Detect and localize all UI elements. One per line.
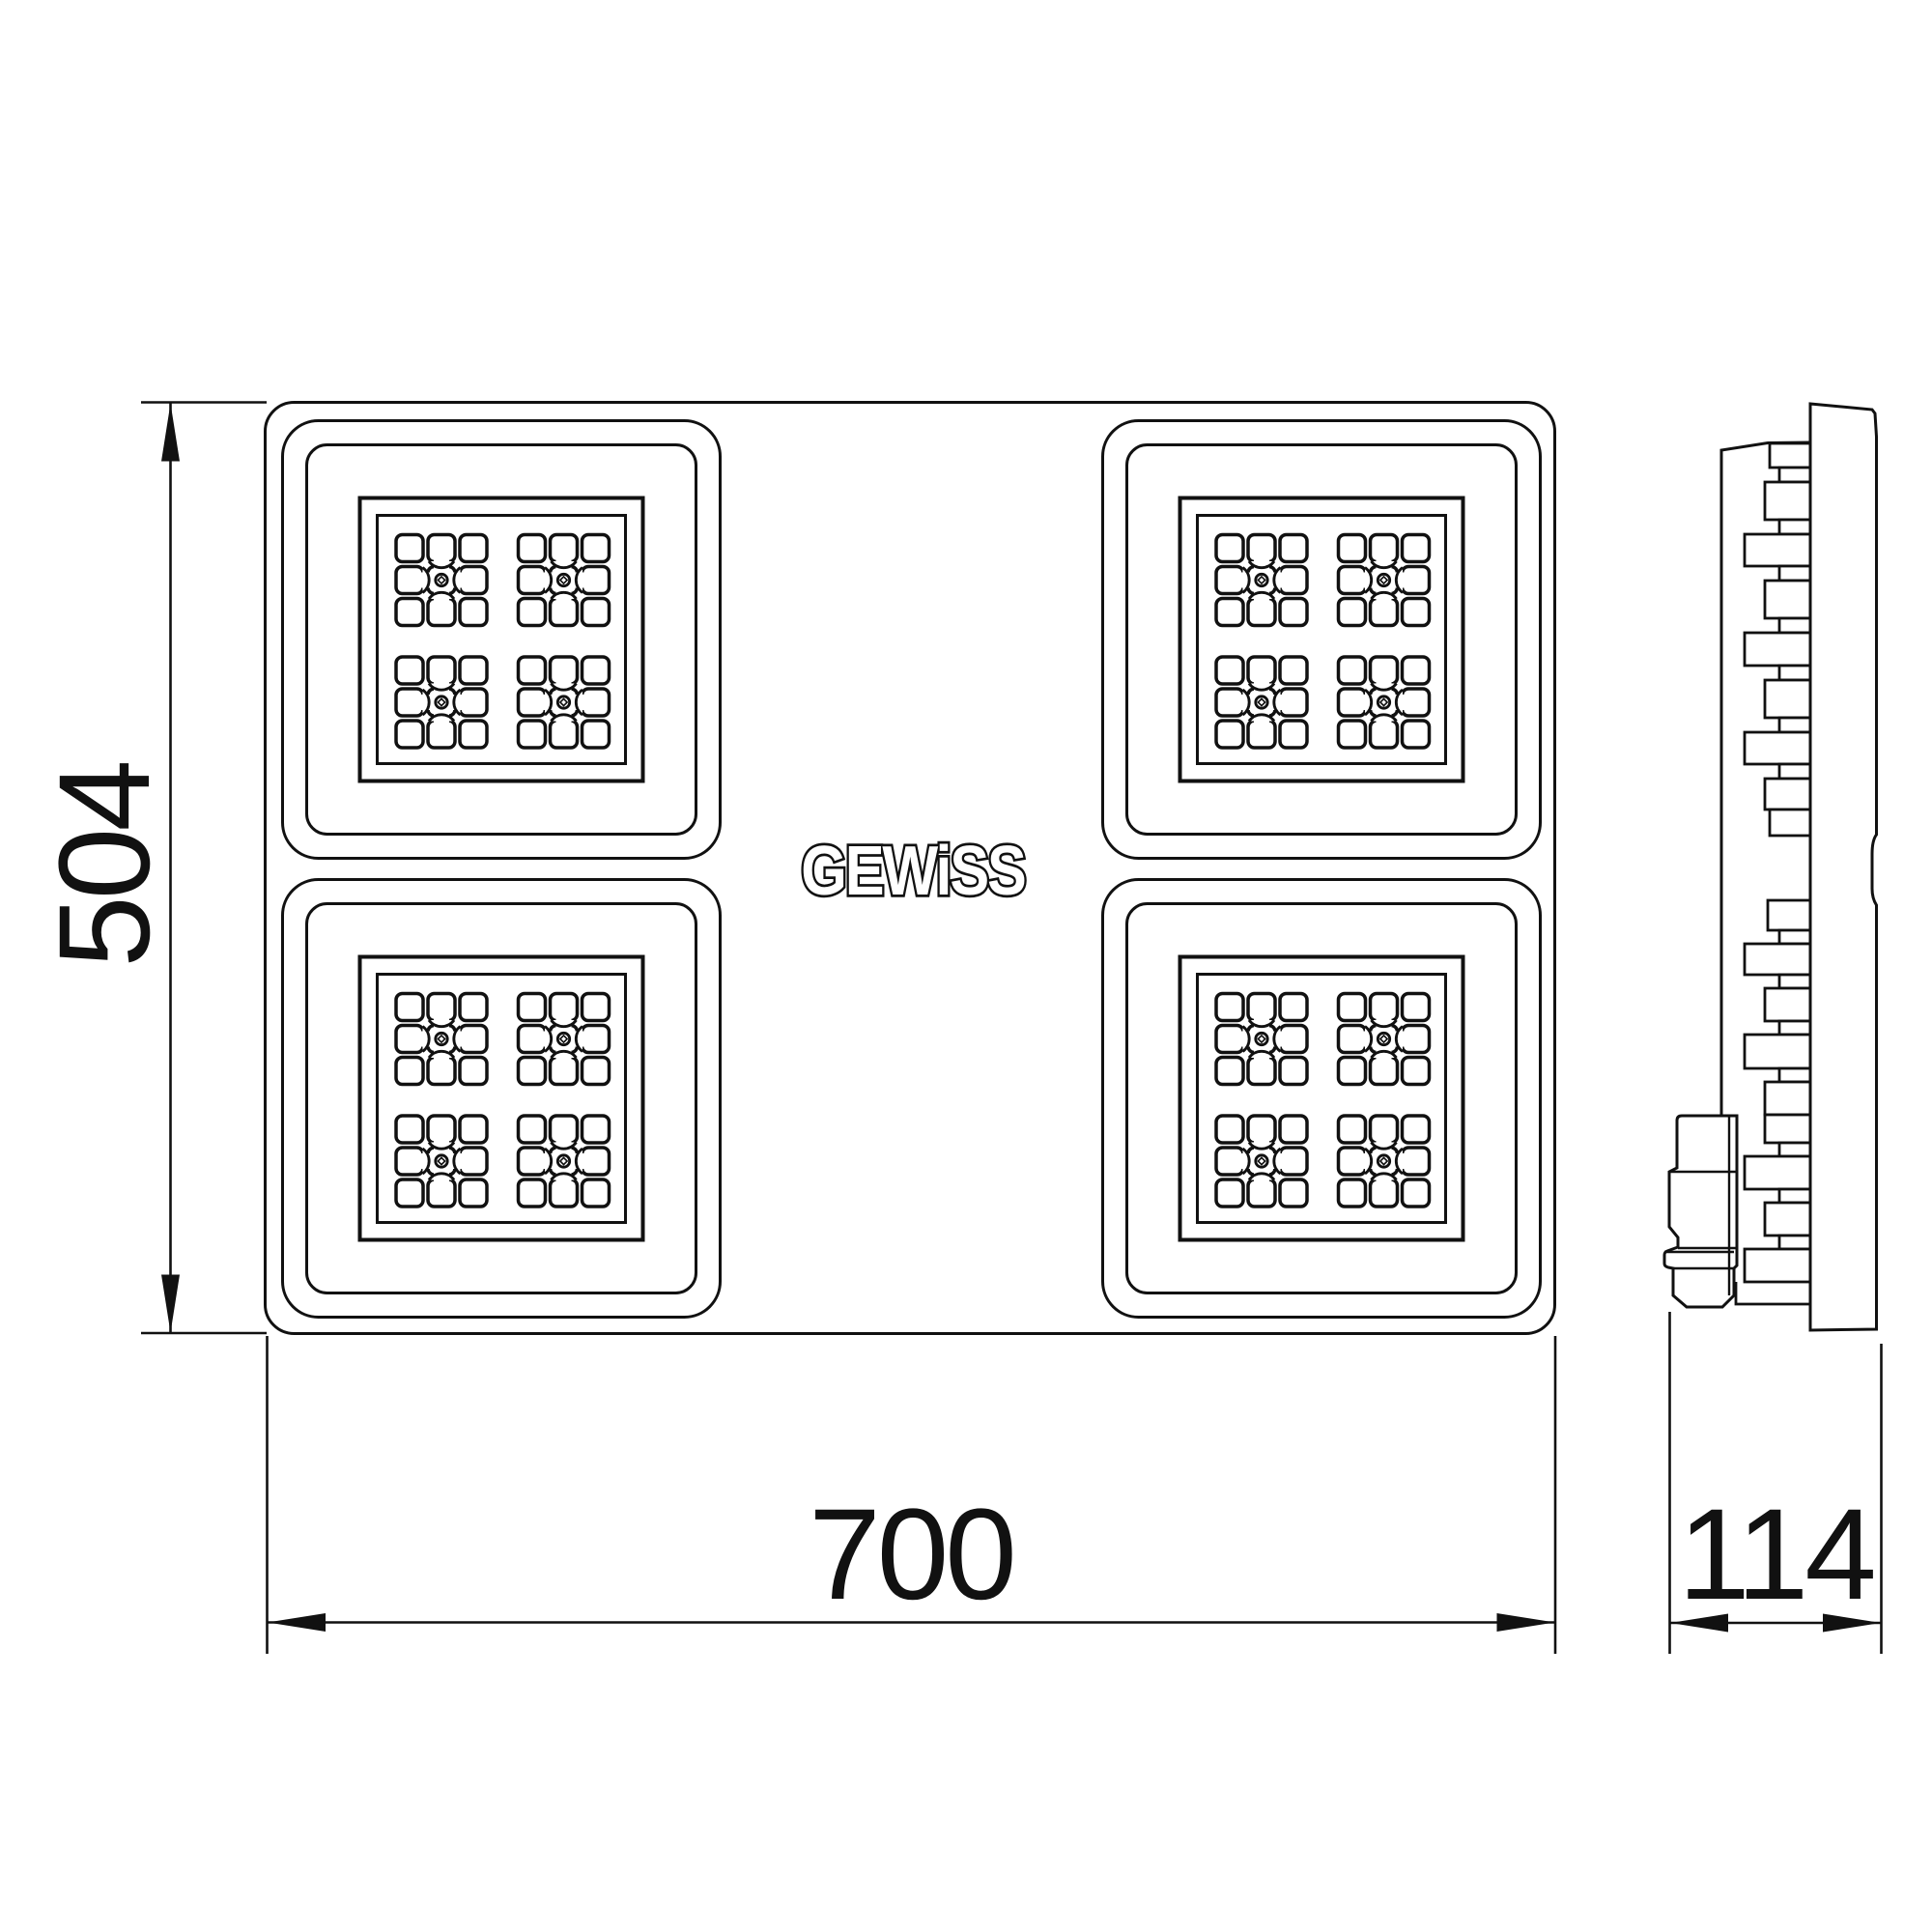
svg-text:114: 114 [1678, 1483, 1873, 1627]
svg-text:504: 504 [33, 763, 177, 968]
svg-text:GEWiSS: GEWiSS [801, 833, 1024, 910]
svg-text:700: 700 [809, 1483, 1013, 1627]
